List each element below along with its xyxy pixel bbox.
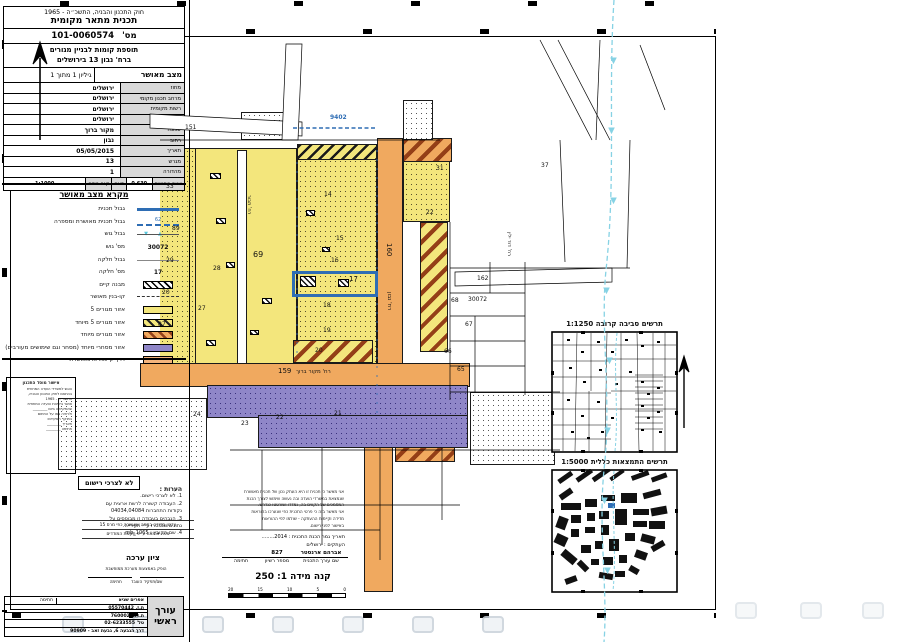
chief-editor-row: ת.ז. 05570442 — [5, 605, 147, 613]
map-label: 24 — [193, 412, 201, 418]
map-label: 89 — [172, 226, 180, 232]
notes-block: הערות : 1. לא לצרכי רישום.2. העבודה קשור… — [20, 486, 182, 538]
map-label: 30072 — [468, 297, 487, 303]
legend-item: אזור מגורים 5 — [3, 304, 185, 317]
map-label: 20 — [315, 348, 323, 354]
map-label: 27 — [198, 306, 206, 312]
legend-label: אזור מגורים מיוחד — [3, 332, 127, 338]
map-label: 20 — [162, 290, 170, 296]
map-label: 67 — [465, 322, 473, 328]
chief-editor-table: עורך ראשי אפרים שגיא חתימה ת.ז. 05570442… — [4, 596, 184, 637]
legend-item: אזור מגורים מיוחד — [3, 329, 185, 342]
map-label: 160 — [386, 243, 392, 256]
map-label: רח' מקור ברוך — [296, 369, 331, 375]
chief-editor-row: דרך הגבעה 6, גבעת זאב - 90909 — [5, 628, 147, 636]
zone-residential-special-top — [403, 138, 452, 162]
existing-building — [262, 298, 272, 304]
title-block-row: מגרש13 — [4, 157, 184, 168]
legend-item: גבול תכנית — [3, 203, 185, 216]
map-label: 37 — [541, 163, 549, 169]
legend-label: מס' חלקה — [3, 269, 127, 275]
title-block-row: שכונהמקור ברוך — [4, 125, 184, 136]
title-block-row: תאריך05/05/2015 — [4, 146, 184, 157]
map-label: 14 — [324, 192, 332, 198]
emboss-stamp — [800, 602, 822, 619]
map-label: 29 — [166, 258, 174, 264]
legend-item: אזור מסחרי מיוחד (מסחר וגם שימושים מעורב… — [3, 342, 185, 355]
legend-symbol-box-y — [143, 306, 173, 314]
editor-name: אברהם ארנסטר — [294, 550, 348, 558]
map-label: 33 — [166, 184, 174, 190]
chief-editor-rows: ת.ז. 05570442ת.ד. 7600020טל' 02-6233555ד… — [5, 605, 147, 636]
editor-sign-label: חתימה — [222, 558, 260, 564]
title-block: חוק התכנון והבניה, התשכ״ה - 1965 תכנית מ… — [3, 6, 185, 191]
preparation-block: תאריך גמר הכנת התכנית : 2014........ העת… — [225, 533, 345, 549]
existing-building — [210, 173, 221, 179]
legend-label: גבול חלקה — [3, 257, 127, 263]
map-label: 69 — [253, 252, 263, 258]
legend-symbol-box-p — [143, 344, 173, 352]
parcel-north-dotted — [241, 112, 287, 140]
legend-symbol-num: 30072 — [133, 241, 183, 253]
notes-lines: 1. לא לצרכי רישום.2. העבודה קשורה לרשת א… — [20, 493, 182, 537]
certification-statement: אני מאשר כי תכנית זו היא העתק נכון של תכ… — [236, 489, 344, 529]
scale-tick: 5 — [317, 587, 320, 592]
legend-item: קו-בנין מאושר — [3, 291, 185, 304]
emboss-stamp — [202, 616, 224, 633]
prep-copies-label: העתקים : — [324, 542, 345, 548]
scale-title: קנה מידה 1: 250 — [238, 572, 348, 582]
parcel-north-dotted2 — [403, 100, 433, 140]
plan-sheet: מחוז :ירושליםנפה :ירושליםמקום : רחו' נבו… — [0, 0, 909, 642]
legend-items: גבול תכנית62גבול תכנית מאושרת ומספרה▲▼גב… — [3, 203, 185, 367]
legend-label: מבנה קיים — [3, 282, 127, 288]
existing-building — [216, 218, 226, 224]
title-block-row: מרחב תכנון מקומיירושלים — [4, 94, 184, 105]
legend-symbol-dashdot — [133, 291, 183, 303]
existing-building — [226, 262, 235, 268]
existing-building — [250, 330, 259, 335]
plan-name-line2: ברח' נבון 13 בירושלים — [5, 56, 183, 66]
map-label: רח' דוד ילין — [506, 232, 512, 256]
chief-editor-row: טל' 02-6233555 — [5, 620, 147, 628]
legend-symbol-line-blue — [133, 203, 183, 215]
legend-label: אזור מסחרי מיוחד (מסחר וגם שימושים מעורב… — [3, 345, 127, 351]
legend-label: קו-בנין מאושר — [3, 294, 127, 300]
emboss-stamp — [272, 616, 294, 633]
inset-general-title: תרשים התמצאות כללית 1:5000 — [551, 458, 678, 466]
scale-ticks: 20151050 — [228, 587, 346, 592]
map-label: 162 — [477, 276, 488, 282]
sheet-count: גיליון 1 מתוך 1 — [4, 68, 94, 82]
scale-tick: 20 — [228, 587, 233, 592]
existing-building — [322, 247, 330, 252]
map-label: 17 — [349, 276, 358, 282]
editor-license-label: מספר רשיון — [260, 558, 294, 564]
sidebar-rule-1 — [2, 183, 186, 185]
plan-type: תכנית מתאר מקומית — [5, 16, 183, 26]
map-label: 15 — [336, 236, 344, 242]
map-label: 65 — [457, 367, 465, 373]
legend-label: גבול תכנית — [3, 206, 127, 212]
chief-editor-header: עורך ראשי — [147, 597, 183, 636]
title-block-row: מהדורה1 — [4, 167, 184, 178]
map-label: 16 — [331, 258, 339, 264]
notes-title: הערות : — [20, 486, 182, 493]
scale-tick: 15 — [258, 587, 263, 592]
legend-label: אזור מגורים 5 — [3, 307, 127, 313]
scale-tick: 0 — [343, 587, 346, 592]
map-label: 66 — [444, 349, 452, 355]
map-label: 23 — [241, 421, 249, 427]
zone-residential-special-center — [293, 340, 373, 363]
approval-stamp-lines: הוגש למשרדי הועדה המחוזיתבהתאם לחוק התכנ… — [10, 387, 72, 432]
legend-symbol-thin — [133, 254, 183, 266]
prep-copies-value: ירושלים — [306, 542, 322, 548]
inset-near-title: תרשים סביבה קרובה 1:1250 — [551, 320, 678, 328]
scale-bar — [228, 593, 346, 598]
law-title: חוק התכנון והבניה, התשכ״ה - 1965 — [5, 9, 183, 16]
approval-stamp-box: אישור מוסד התכנון הוגש למשרדי הועדה המחו… — [6, 377, 76, 474]
chief-editor-signature-label: חתימה — [5, 598, 57, 604]
map-label: 22 — [276, 415, 284, 421]
parcels-southeast — [470, 392, 555, 465]
existing-building — [206, 340, 216, 346]
legend-label: אזור מגורים 5 מיוחד — [3, 320, 127, 326]
plan-number-label: מס' — [122, 31, 137, 41]
title-block-row: רחובנבון — [4, 136, 184, 147]
emboss-stamp — [482, 616, 504, 633]
title-block-rows: מחוזירושליםמרחב תכנון מקומיירושליםרשות מ… — [4, 83, 184, 178]
legend-item: 62גבול תכנית מאושרת ומספרה — [3, 216, 185, 229]
map-label: 31 — [436, 166, 444, 172]
plan-location-highlight — [608, 503, 615, 508]
plan-number: 101-0060574 — [51, 31, 114, 41]
title-block-row: רשות מקומיתירושלים — [4, 104, 184, 115]
map-label: 21 — [334, 411, 342, 417]
inset-general-map — [551, 469, 678, 593]
map-label: 18 — [323, 303, 331, 309]
sidebar-divider — [189, 0, 190, 642]
prep-date-label: תאריך גמר הכנת התכנית : — [289, 534, 345, 540]
map-label: רח' תבור — [246, 195, 252, 214]
legend-symbol-num: 17 — [133, 266, 183, 278]
editor-name-label: שם עורך התכנית — [294, 558, 348, 564]
legend-item: 30072מס' גוש — [3, 241, 185, 254]
map-label: 151 — [185, 125, 196, 131]
legend-item: מבנה קיים — [3, 279, 185, 292]
plan-status: מצב מאושר — [94, 68, 185, 82]
map-label: 159 — [278, 368, 291, 374]
legend-symbol-box-oh — [143, 331, 173, 339]
alley-parcel — [237, 150, 247, 376]
chief-editor-name: אפרים שגיא — [118, 598, 144, 604]
inset-near-map — [551, 331, 678, 453]
legend-item: דרך קיימת או מאושרת — [3, 354, 185, 367]
emboss-stamp — [342, 616, 364, 633]
zone-commercial-special-lower — [258, 415, 468, 448]
legend-label: מס' גוש — [3, 244, 127, 250]
map-label: 19 — [323, 328, 331, 334]
legend-item: ▲▼גבול גוש — [3, 228, 185, 241]
legend-item: גבול חלקה — [3, 253, 185, 266]
scale-tick: 10 — [287, 587, 292, 592]
editor-license: 827 — [260, 550, 294, 558]
zone-residential5-special — [297, 144, 377, 160]
map-label: 22 — [426, 210, 434, 216]
zone-residential-special-east — [420, 222, 448, 352]
sidebar-rule-2 — [2, 358, 186, 360]
legend-symbol-box-bldg — [143, 281, 173, 289]
road-navon-south — [364, 424, 393, 592]
map-label: 28 — [213, 266, 221, 272]
map-label: 87 — [158, 322, 166, 328]
legend-item: 17מס' חלקה — [3, 266, 185, 279]
plan-name-line1: תוספת קומות לבניין מגורים — [5, 46, 183, 56]
emboss-stamp — [735, 602, 757, 619]
existing-building — [306, 210, 315, 216]
legend-label: גבול תכנית מאושרת ומספרה — [3, 219, 127, 225]
existing-building — [300, 276, 316, 287]
legend-title: מקרא מצב מאושר — [3, 190, 185, 199]
map-label: 9402 — [330, 115, 347, 121]
title-block-row: מחוזירושלים — [4, 83, 184, 94]
title-block-row: ישובירושלים — [4, 115, 184, 126]
map-label: 68 — [451, 298, 459, 304]
emboss-stamp — [412, 616, 434, 633]
map-label: רח' נבון — [386, 292, 392, 310]
existing-building — [338, 279, 349, 287]
legend-label: גבול גוש — [3, 231, 127, 237]
chief-editor-row: ת.ד. 7600020 — [5, 613, 147, 621]
approval-stamp-title: אישור מוסד התכנון — [10, 380, 72, 385]
prep-date-value: 2014........ — [262, 534, 287, 540]
editor-signature-block: אברהם ארנסטר שם עורך התכנית 827 מספר רשי… — [222, 550, 348, 564]
legend: מקרא מצב מאושר גבול תכנית62גבול תכנית מא… — [3, 190, 185, 367]
emboss-stamp — [862, 602, 884, 619]
